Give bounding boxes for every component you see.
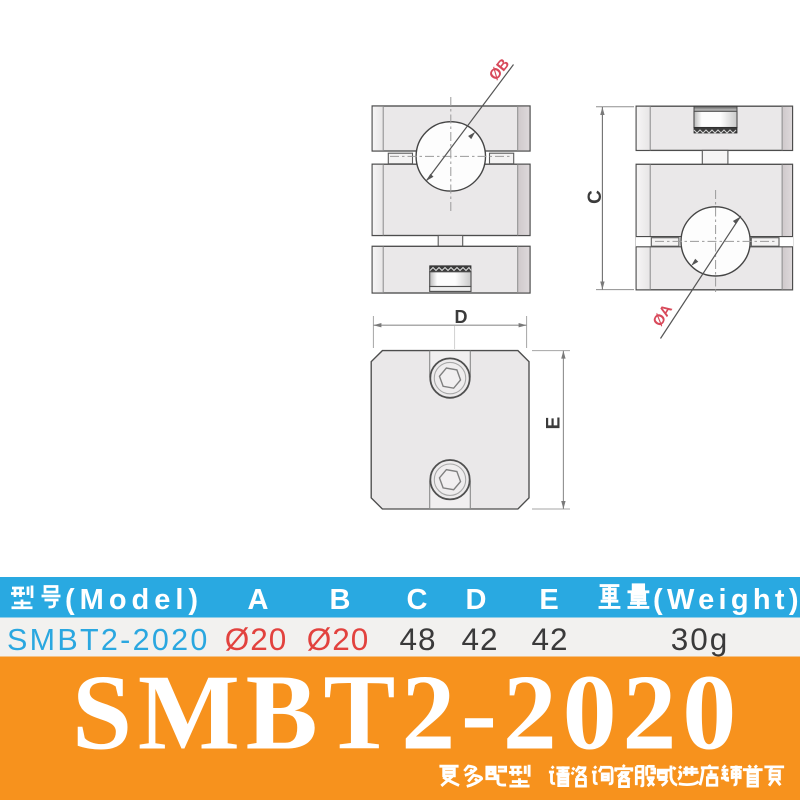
svg-text:48: 48: [399, 621, 436, 657]
svg-text:(Weight): (Weight): [653, 584, 800, 616]
svg-text:SMBT2-2020: SMBT2-2020: [7, 623, 210, 657]
svg-text:42: 42: [461, 621, 498, 657]
svg-text:Ø20: Ø20: [225, 621, 288, 657]
svg-text:SMBT2-2020: SMBT2-2020: [72, 654, 742, 773]
svg-text:C: C: [407, 584, 428, 616]
svg-text:D: D: [466, 584, 487, 616]
svg-text:Ø20: Ø20: [307, 621, 370, 657]
svg-text:E: E: [544, 417, 565, 430]
svg-text:(Model): (Model): [65, 584, 203, 616]
svg-text:E: E: [539, 584, 558, 616]
svg-text:C: C: [585, 190, 606, 204]
svg-text:B: B: [330, 584, 351, 616]
svg-text:30g: 30g: [671, 621, 730, 657]
svg-text:A: A: [248, 584, 269, 616]
svg-text:42: 42: [531, 621, 568, 657]
svg-text:D: D: [455, 307, 468, 327]
